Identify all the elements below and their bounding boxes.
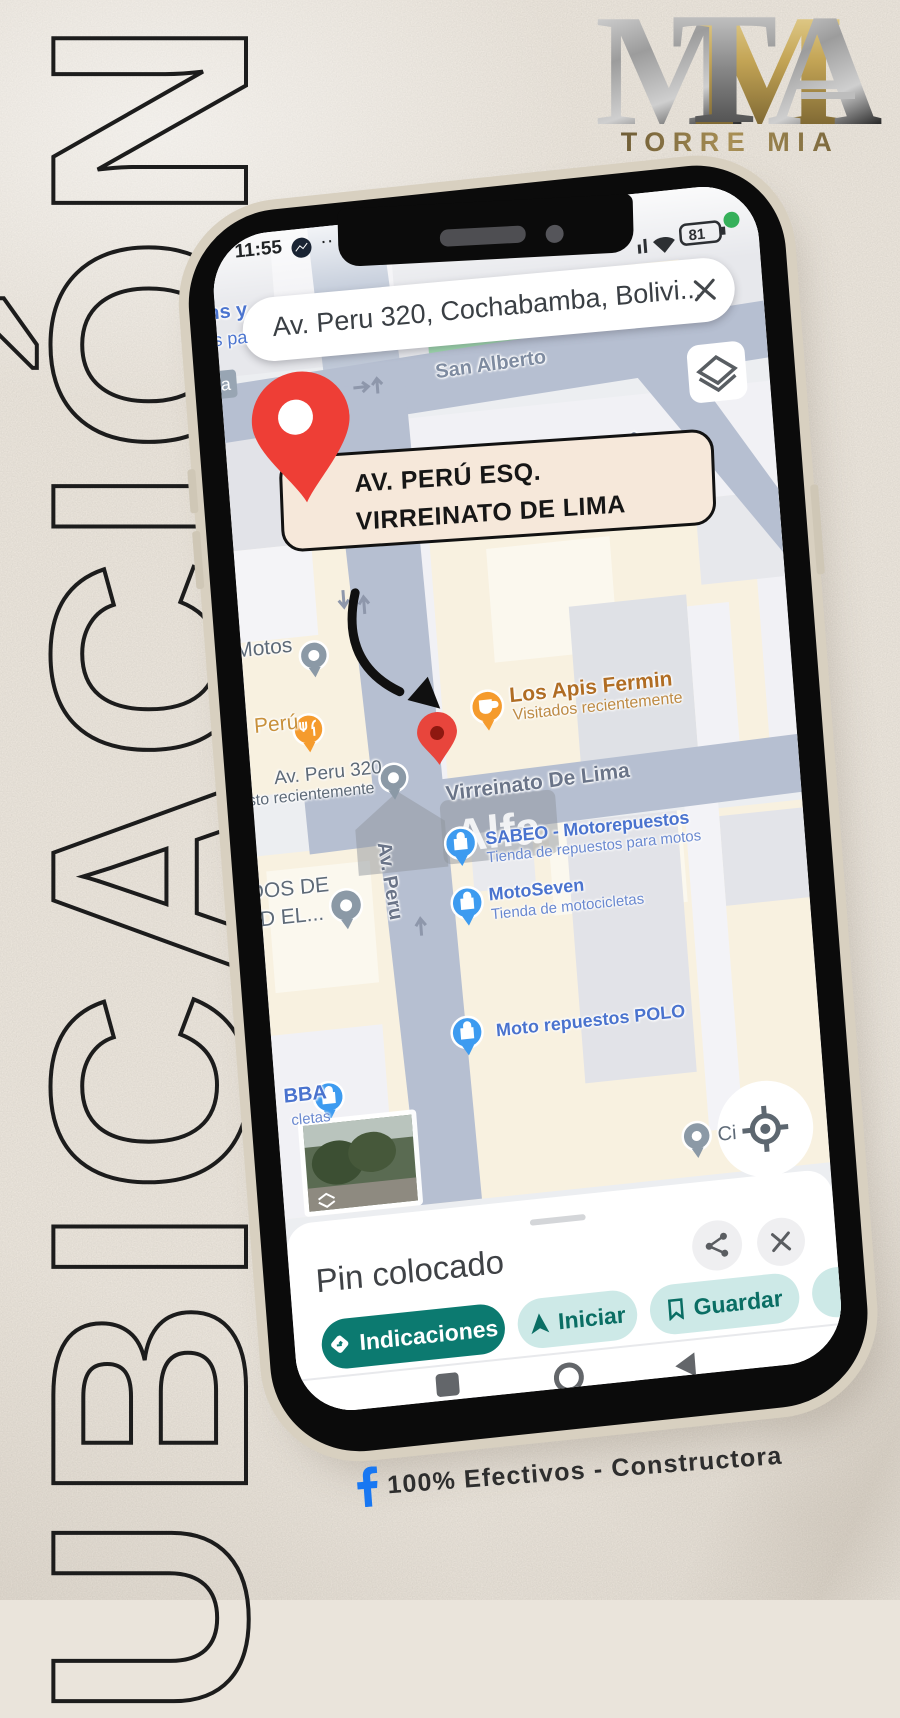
svg-text:TORRE MIA: TORRE MIA — [621, 127, 840, 157]
svg-text:81: 81 — [688, 226, 706, 245]
